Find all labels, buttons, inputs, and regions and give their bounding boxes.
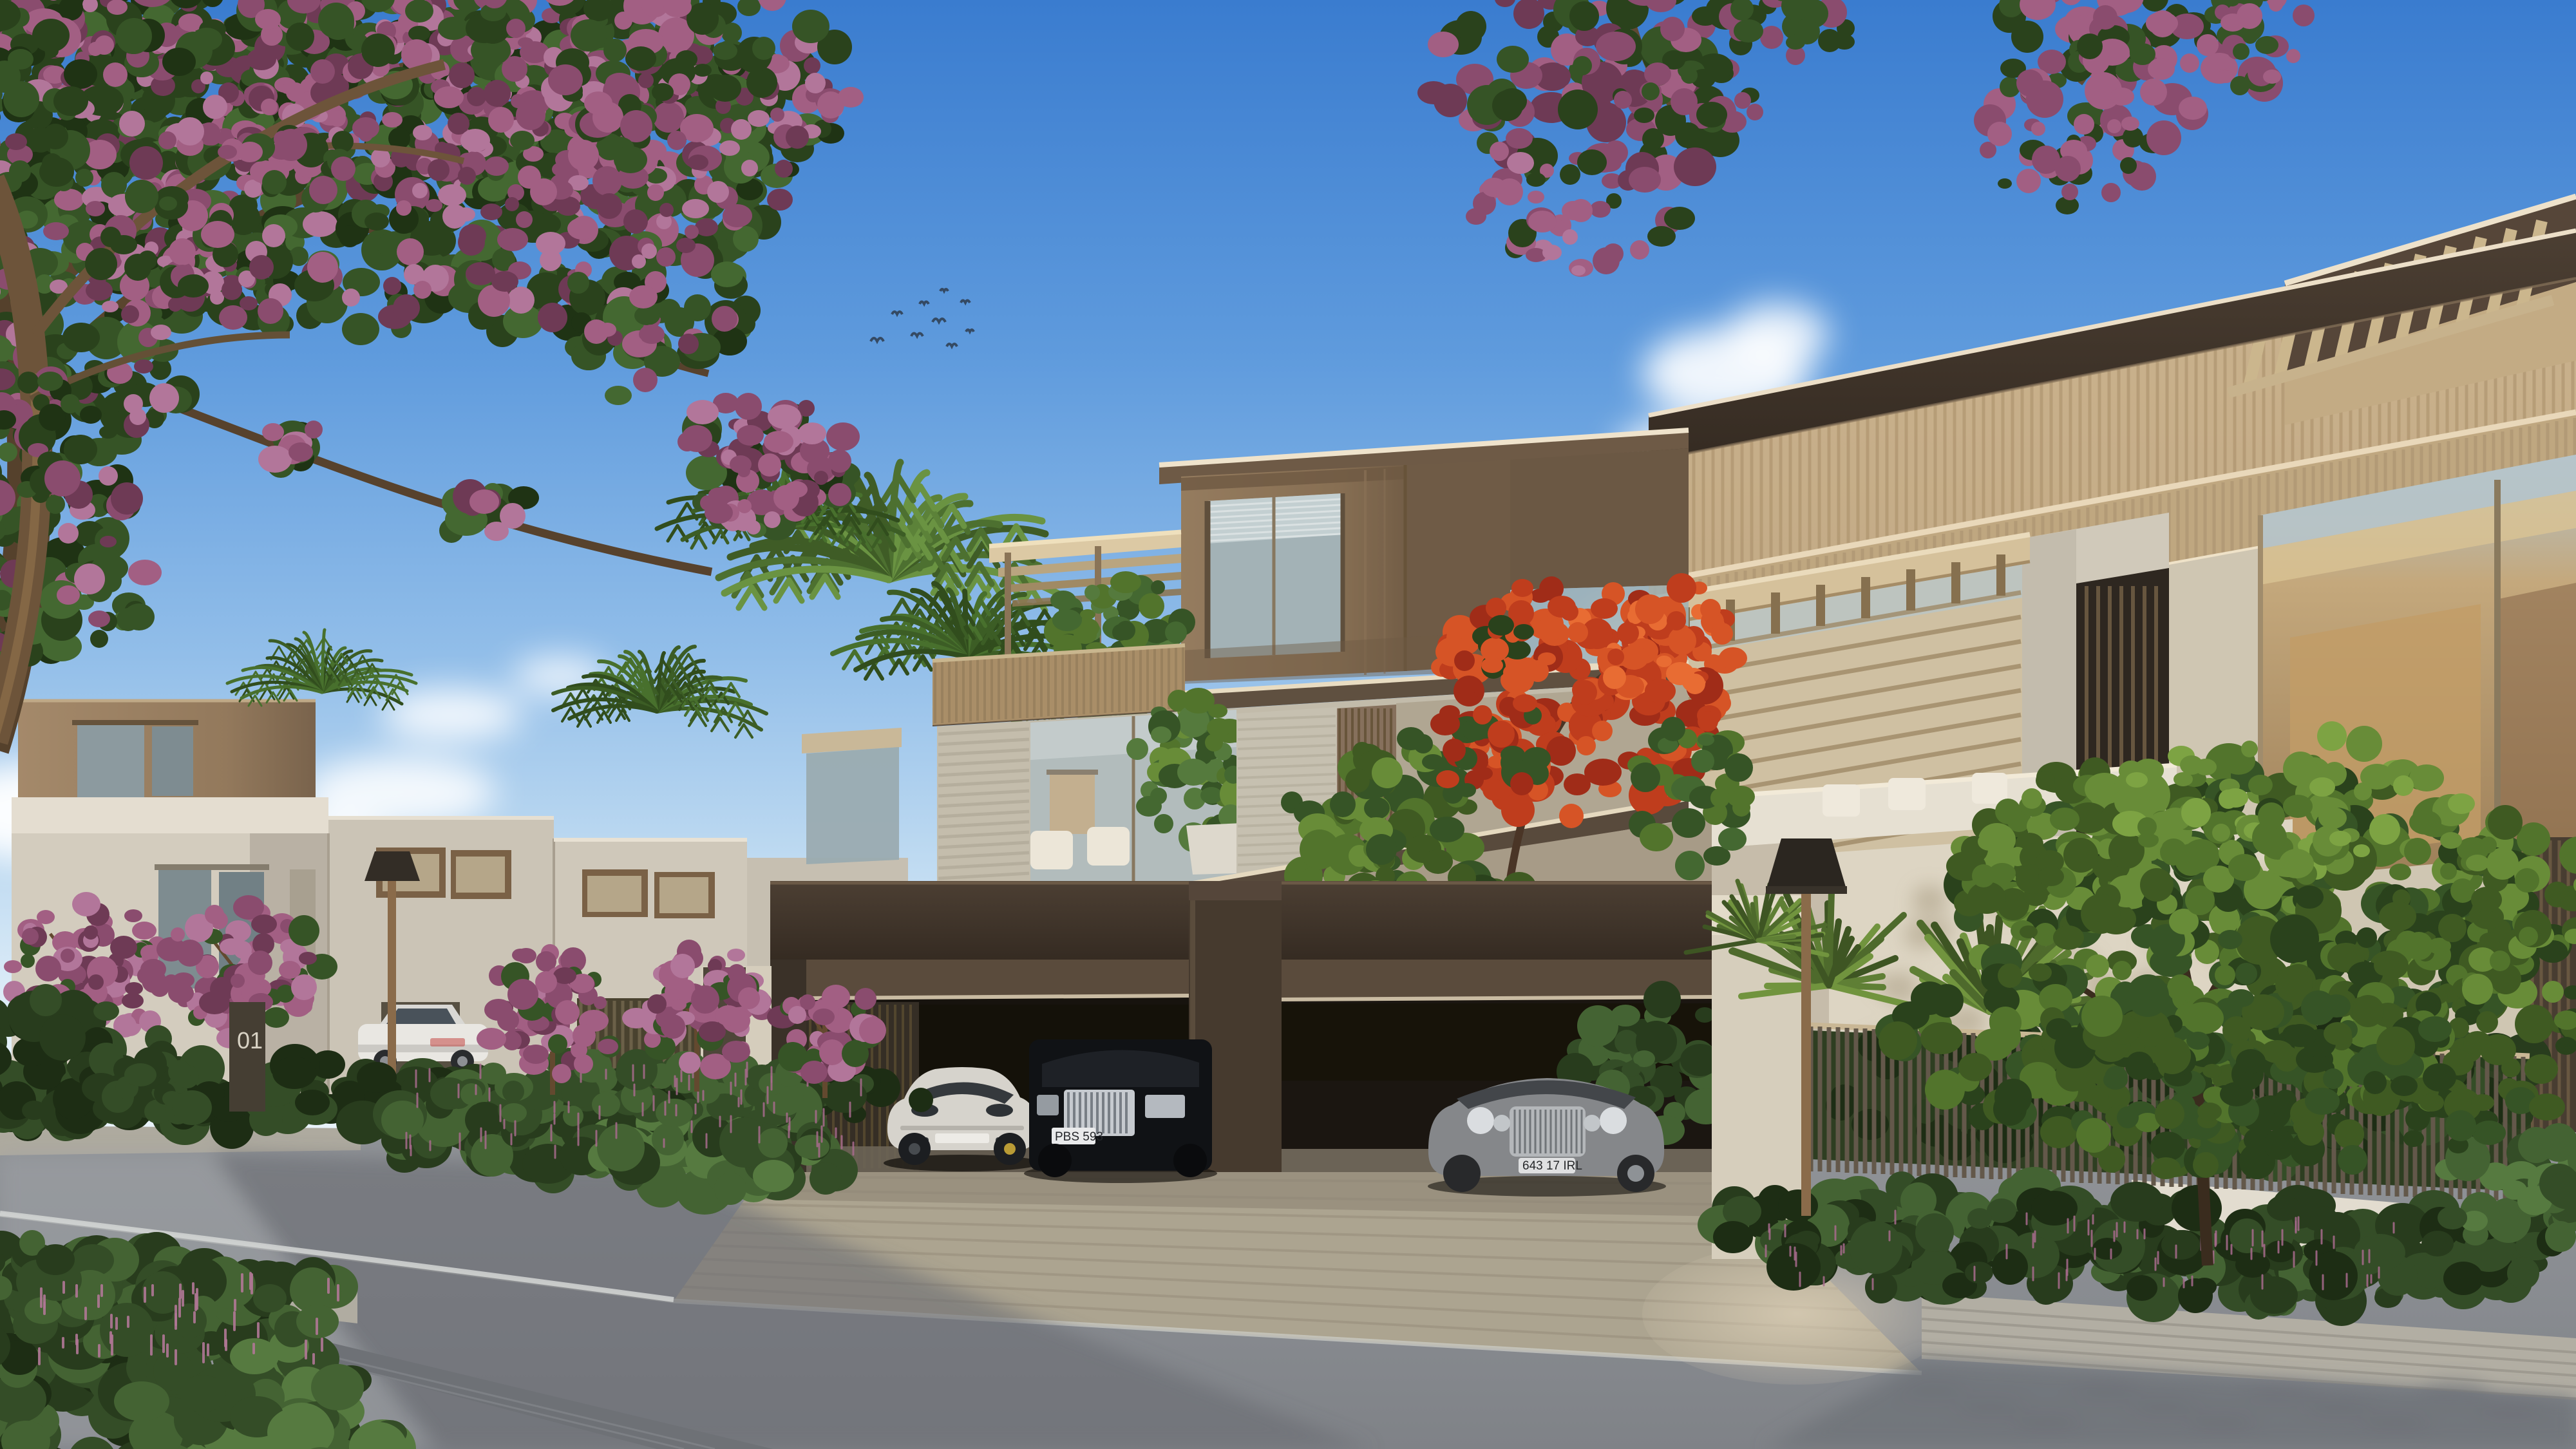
svg-text:643 17 IRL: 643 17 IRL [1522,1159,1582,1173]
svg-text:PBS 593: PBS 593 [1055,1130,1103,1144]
svg-text:01: 01 [237,1027,263,1054]
